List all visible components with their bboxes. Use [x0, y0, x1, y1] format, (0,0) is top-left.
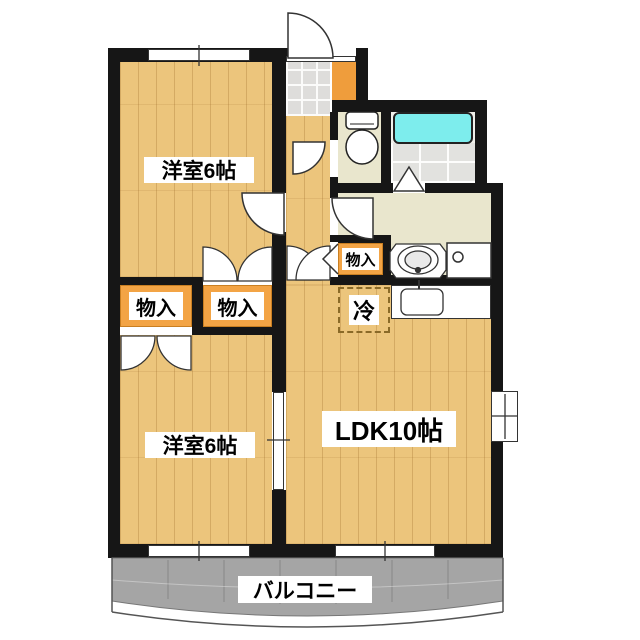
western-room-bottom-label: 洋室6帖: [145, 432, 255, 458]
western-room-top-text: 洋室6帖: [162, 155, 237, 185]
balcony-text: バルコニー: [253, 575, 358, 605]
entrance-step: [332, 62, 356, 102]
bathroom-doorway: [393, 183, 425, 193]
western-room-top-label: 洋室6帖: [144, 157, 254, 183]
ldk-text: LDK10帖: [335, 411, 443, 448]
wall-closet-strip-top: [108, 277, 203, 285]
wall-spine-lower: [272, 332, 286, 392]
closet-left-text: 物入: [136, 292, 176, 321]
closet-hall-doorway: [330, 242, 338, 277]
balcony-label: バルコニー: [238, 576, 372, 603]
closet-hall-text: 物入: [345, 249, 375, 270]
wall-entrance-right: [356, 48, 368, 112]
hallway-floor: [286, 116, 330, 285]
wall-hall-east-1: [330, 112, 338, 140]
wall-spine-bottom: [272, 490, 286, 544]
wall-closet-hall-top: [330, 235, 391, 243]
window-balcony-left: [148, 545, 250, 557]
washroom-doorway: [330, 198, 338, 235]
bathroom-tile-floor: [391, 143, 475, 183]
entrance-sill: [286, 56, 356, 62]
toilet-doorway: [330, 140, 338, 177]
wall-closet-strip-bottom: [192, 327, 272, 335]
wall-washroom-bottom: [330, 275, 503, 285]
refrigerator-label: 冷: [349, 295, 379, 325]
wall-spine-upper: [272, 48, 286, 193]
wall-spine-mid: [272, 232, 286, 332]
wall-bath-right: [475, 100, 487, 192]
floor-plan: 洋室6帖 洋室6帖 LDK10帖 バルコニー 物入 物入 物入 冷: [0, 0, 640, 640]
closet-hall-label: 物入: [342, 248, 379, 270]
entrance-genkan-tile: [286, 62, 330, 116]
wall-closet-divider: [192, 283, 203, 327]
wall-toilet-bath-divider: [381, 112, 391, 183]
sliding-door-western-bottom: [273, 392, 284, 490]
refrigerator-text: 冷: [353, 294, 375, 326]
window-balcony-right: [335, 545, 435, 557]
western-top-doorway: [272, 193, 286, 232]
wall-left: [108, 48, 120, 556]
western-room-bottom-text: 洋室6帖: [163, 430, 238, 460]
window-ldk-right: [491, 391, 518, 442]
kitchen-counter: [391, 285, 491, 319]
closet-left-label: 物入: [129, 292, 183, 320]
closet-right-text: 物入: [218, 292, 258, 321]
wall-step-stub: [475, 183, 503, 193]
toilet-room-floor: [338, 112, 381, 183]
wall-right: [491, 183, 503, 558]
entrance-door: [288, 13, 333, 58]
closet-right-label: 物入: [211, 292, 264, 320]
ldk-label: LDK10帖: [322, 411, 456, 447]
window-top: [148, 49, 250, 61]
wall-washroom-top: [330, 183, 391, 193]
